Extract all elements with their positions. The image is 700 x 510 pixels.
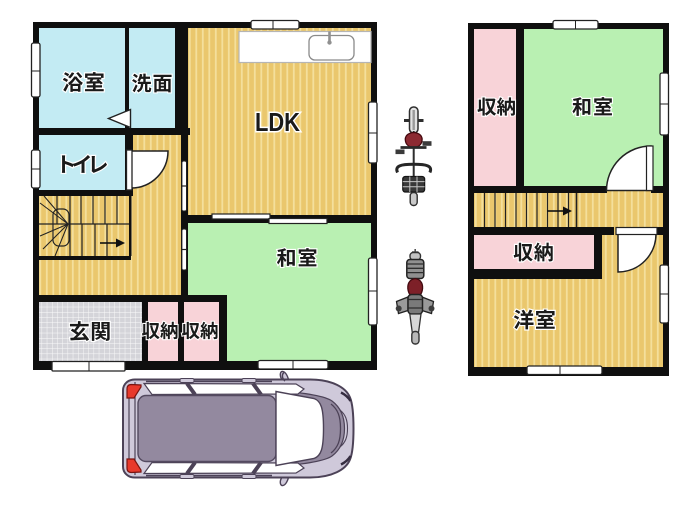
svg-text:LDK: LDK: [255, 107, 300, 137]
